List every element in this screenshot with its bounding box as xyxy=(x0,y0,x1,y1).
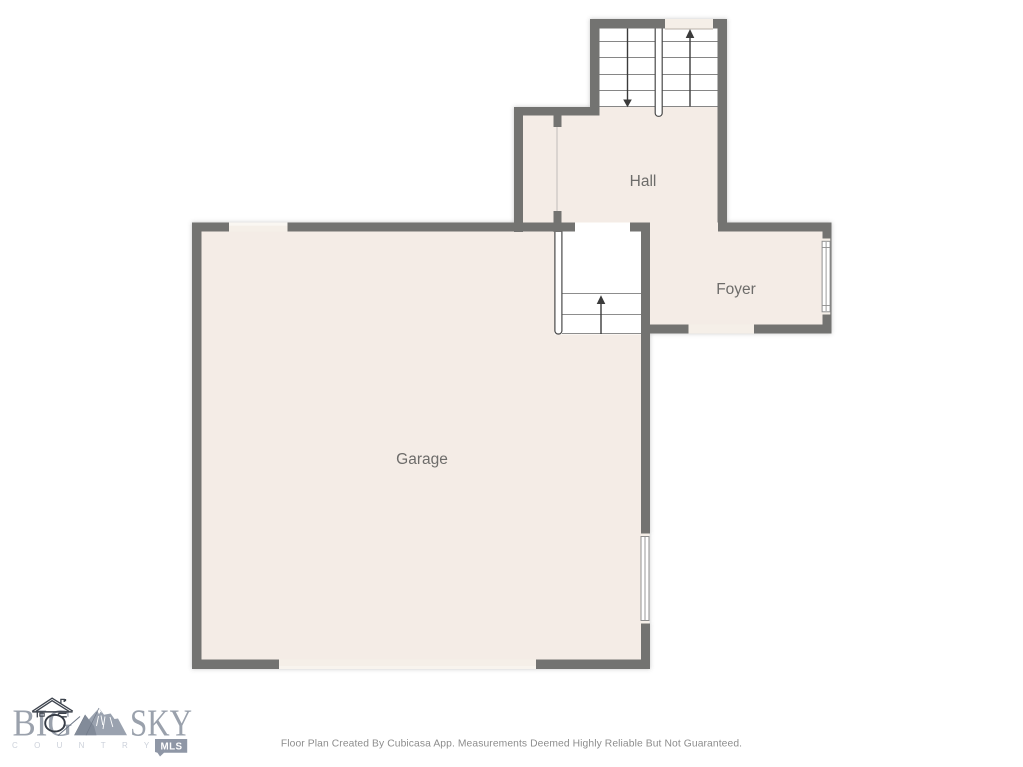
svg-text:COUNTRY: COUNTRY xyxy=(12,741,166,750)
svg-text:MLS: MLS xyxy=(161,742,183,753)
svg-text:Foyer: Foyer xyxy=(716,281,756,298)
svg-text:Garage: Garage xyxy=(396,451,448,468)
svg-text:Hall: Hall xyxy=(630,173,657,190)
svg-text:SKY: SKY xyxy=(130,703,192,745)
svg-text:Floor Plan Created By Cubicasa: Floor Plan Created By Cubicasa App. Meas… xyxy=(281,739,742,750)
svg-text:BIG: BIG xyxy=(13,703,73,745)
